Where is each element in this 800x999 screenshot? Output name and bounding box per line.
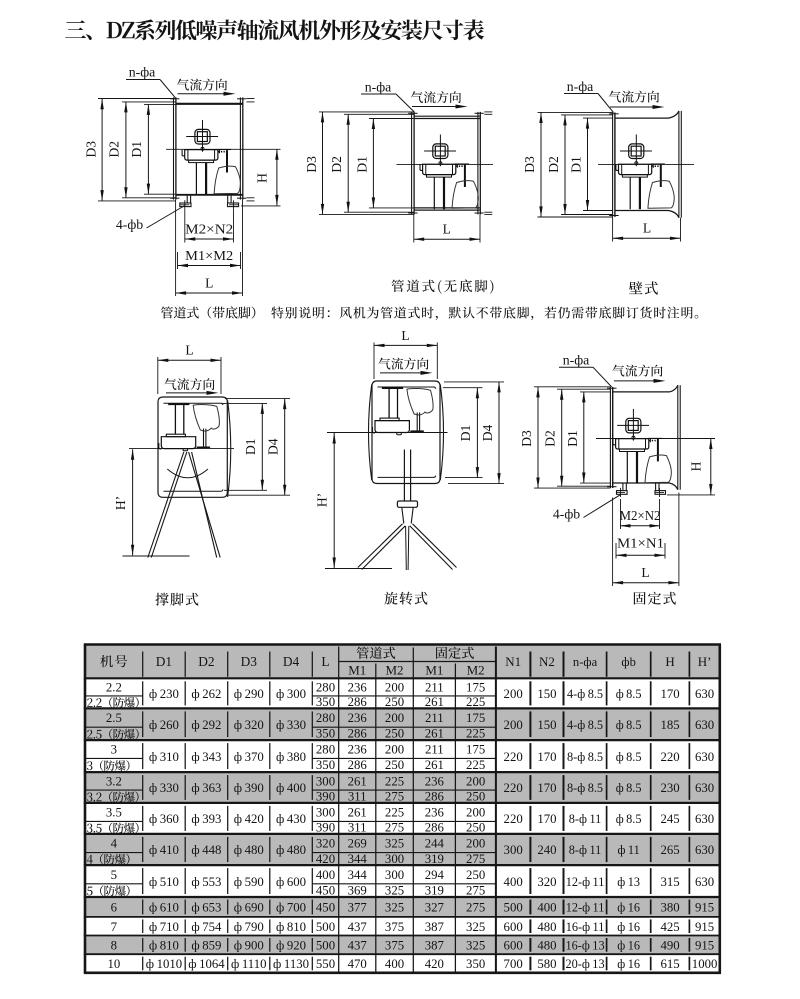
svg-text:400: 400 bbox=[316, 868, 335, 882]
svg-text:L: L bbox=[643, 221, 651, 236]
svg-text:8-ф 8.5: 8-ф 8.5 bbox=[567, 781, 603, 795]
svg-text:311: 311 bbox=[348, 821, 367, 835]
svg-text:ф 343: ф 343 bbox=[191, 750, 221, 764]
svg-text:225: 225 bbox=[385, 805, 404, 819]
svg-text:375: 375 bbox=[385, 920, 404, 934]
svg-text:170: 170 bbox=[537, 781, 556, 795]
svg-text:350: 350 bbox=[316, 695, 335, 709]
svg-text:n-фa: n-фa bbox=[129, 65, 156, 80]
svg-text:280: 280 bbox=[316, 743, 335, 757]
svg-text:ф 430: ф 430 bbox=[276, 812, 306, 826]
svg-text:ф 380: ф 380 bbox=[276, 750, 306, 764]
svg-text:D3: D3 bbox=[241, 654, 258, 669]
svg-text:261: 261 bbox=[425, 727, 444, 741]
svg-text:175: 175 bbox=[466, 711, 485, 725]
svg-text:275: 275 bbox=[385, 789, 404, 803]
svg-text:ф 553: ф 553 bbox=[191, 875, 221, 889]
svg-text:ф 1010: ф 1010 bbox=[146, 957, 182, 971]
svg-text:ф 1110: ф 1110 bbox=[231, 957, 267, 971]
svg-text:244: 244 bbox=[425, 837, 445, 851]
svg-text:ф 790: ф 790 bbox=[234, 920, 264, 934]
svg-text:280: 280 bbox=[316, 711, 335, 725]
svg-text:250: 250 bbox=[466, 821, 485, 835]
svg-text:4: 4 bbox=[111, 837, 118, 851]
svg-text:D2: D2 bbox=[198, 654, 214, 669]
svg-text:300: 300 bbox=[316, 805, 335, 819]
svg-text:H: H bbox=[689, 461, 704, 471]
svg-text:490: 490 bbox=[660, 939, 679, 953]
svg-text:400: 400 bbox=[385, 957, 404, 971]
svg-text:n-фa: n-фa bbox=[365, 80, 392, 95]
svg-text:L: L bbox=[401, 328, 409, 343]
svg-text:ф 390: ф 390 bbox=[234, 781, 264, 795]
svg-text:500: 500 bbox=[504, 901, 523, 915]
svg-text:ф 480: ф 480 bbox=[276, 843, 306, 857]
svg-text:250: 250 bbox=[385, 758, 404, 772]
svg-text:630: 630 bbox=[695, 875, 714, 889]
svg-text:L: L bbox=[185, 343, 193, 358]
svg-text:M2×N2: M2×N2 bbox=[620, 508, 661, 523]
svg-text:ф 590: ф 590 bbox=[234, 875, 264, 889]
svg-text:200: 200 bbox=[504, 718, 523, 732]
svg-text:420: 420 bbox=[316, 852, 335, 866]
svg-text:915: 915 bbox=[695, 901, 714, 915]
svg-text:325: 325 bbox=[466, 939, 485, 953]
svg-text:L: L bbox=[321, 654, 329, 669]
svg-text:700: 700 bbox=[504, 957, 523, 971]
svg-text:220: 220 bbox=[504, 812, 523, 826]
svg-text:H: H bbox=[255, 173, 270, 183]
svg-text:ф 370: ф 370 bbox=[234, 750, 264, 764]
svg-text:319: 319 bbox=[425, 883, 444, 897]
svg-text:D3: D3 bbox=[304, 156, 319, 173]
svg-text:250: 250 bbox=[385, 727, 404, 741]
svg-text:ф 900: ф 900 bbox=[234, 939, 264, 953]
svg-text:ф 262: ф 262 bbox=[191, 687, 221, 701]
svg-text:ф 16: ф 16 bbox=[617, 901, 640, 915]
svg-text:ф 610: ф 610 bbox=[149, 901, 179, 915]
svg-text:630: 630 bbox=[695, 718, 714, 732]
svg-text:M1×M2: M1×M2 bbox=[185, 248, 233, 263]
svg-text:185: 185 bbox=[660, 718, 679, 732]
svg-text:275: 275 bbox=[385, 821, 404, 835]
svg-text:H’: H’ bbox=[113, 496, 128, 510]
svg-text:ф 13: ф 13 bbox=[617, 875, 640, 889]
svg-text:H’: H’ bbox=[698, 654, 712, 669]
svg-text:325: 325 bbox=[385, 901, 404, 915]
svg-text:380: 380 bbox=[660, 901, 679, 915]
svg-text:L: L bbox=[641, 565, 649, 580]
svg-text:225: 225 bbox=[466, 758, 485, 772]
svg-text:200: 200 bbox=[385, 743, 404, 757]
svg-text:230: 230 bbox=[660, 781, 679, 795]
svg-text:ф 710: ф 710 bbox=[149, 920, 179, 934]
svg-text:630: 630 bbox=[695, 781, 714, 795]
svg-text:M1: M1 bbox=[425, 663, 443, 678]
svg-text:L: L bbox=[205, 276, 213, 291]
svg-text:12-ф 11: 12-ф 11 bbox=[566, 875, 605, 889]
svg-text:4-фb: 4-фb bbox=[116, 217, 143, 232]
svg-text:D4: D4 bbox=[480, 425, 495, 442]
svg-text:286: 286 bbox=[348, 758, 368, 772]
svg-text:3: 3 bbox=[111, 743, 117, 757]
svg-text:2.2: 2.2 bbox=[106, 680, 122, 694]
svg-text:4-ф 8.5: 4-ф 8.5 bbox=[567, 718, 603, 732]
svg-text:375: 375 bbox=[385, 939, 404, 953]
svg-text:20-ф 13: 20-ф 13 bbox=[565, 957, 604, 971]
svg-text:450: 450 bbox=[316, 883, 335, 897]
svg-text:220: 220 bbox=[660, 750, 679, 764]
svg-text:275: 275 bbox=[466, 901, 485, 915]
svg-text:ф 292: ф 292 bbox=[191, 718, 221, 732]
svg-text:470: 470 bbox=[348, 957, 367, 971]
svg-text:350: 350 bbox=[316, 727, 335, 741]
svg-text:ф 410: ф 410 bbox=[149, 843, 179, 857]
svg-text:n-фa: n-фa bbox=[563, 353, 590, 368]
svg-text:ф 810: ф 810 bbox=[149, 939, 179, 953]
svg-text:150: 150 bbox=[537, 687, 556, 701]
svg-text:ф 260: ф 260 bbox=[149, 718, 179, 732]
svg-text:ф 330: ф 330 bbox=[276, 718, 306, 732]
svg-text:ф 700: ф 700 bbox=[276, 901, 306, 915]
svg-text:325: 325 bbox=[466, 920, 485, 934]
svg-text:D2: D2 bbox=[546, 156, 561, 173]
svg-text:350: 350 bbox=[466, 957, 485, 971]
svg-text:225: 225 bbox=[385, 774, 404, 788]
svg-text:220: 220 bbox=[504, 781, 523, 795]
svg-text:300: 300 bbox=[385, 852, 404, 866]
svg-text:n-фa: n-фa bbox=[573, 655, 598, 669]
svg-text:480: 480 bbox=[537, 939, 556, 953]
svg-text:319: 319 bbox=[425, 852, 444, 866]
svg-text:ф 859: ф 859 bbox=[191, 939, 221, 953]
svg-text:200: 200 bbox=[466, 837, 485, 851]
svg-text:315: 315 bbox=[660, 875, 679, 889]
svg-text:ф 16: ф 16 bbox=[617, 957, 640, 971]
svg-text:600: 600 bbox=[504, 920, 523, 934]
svg-text:240: 240 bbox=[537, 843, 556, 857]
svg-text:300: 300 bbox=[316, 774, 335, 788]
svg-text:211: 211 bbox=[425, 743, 444, 757]
svg-text:200: 200 bbox=[466, 805, 485, 819]
svg-text:280: 280 bbox=[316, 680, 335, 694]
svg-text:D2: D2 bbox=[543, 430, 558, 447]
svg-text:3.5: 3.5 bbox=[106, 805, 122, 819]
svg-text:390: 390 bbox=[316, 789, 335, 803]
svg-text:D1: D1 bbox=[458, 425, 473, 442]
svg-text:ф 920: ф 920 bbox=[276, 939, 306, 953]
svg-text:D1: D1 bbox=[243, 439, 258, 456]
svg-text:ф 310: ф 310 bbox=[149, 750, 179, 764]
svg-text:M2: M2 bbox=[467, 663, 485, 678]
svg-text:437: 437 bbox=[348, 939, 368, 953]
svg-text:580: 580 bbox=[537, 957, 556, 971]
svg-text:ф 1064: ф 1064 bbox=[188, 957, 225, 971]
svg-text:ф 653: ф 653 bbox=[191, 901, 221, 915]
svg-text:369: 369 bbox=[348, 883, 367, 897]
svg-text:ф 230: ф 230 bbox=[149, 687, 179, 701]
svg-text:H: H bbox=[665, 654, 674, 669]
svg-text:261: 261 bbox=[348, 805, 367, 819]
svg-text:n-фa: n-фa bbox=[567, 79, 594, 94]
svg-text:245: 245 bbox=[660, 812, 679, 826]
svg-text:915: 915 bbox=[695, 920, 714, 934]
svg-text:390: 390 bbox=[316, 821, 335, 835]
svg-text:ф 448: ф 448 bbox=[191, 843, 221, 857]
svg-text:M1: M1 bbox=[348, 663, 366, 678]
svg-text:ф 8.5: ф 8.5 bbox=[616, 812, 642, 826]
svg-text:450: 450 bbox=[316, 901, 335, 915]
svg-text:320: 320 bbox=[316, 837, 335, 851]
svg-text:400: 400 bbox=[504, 875, 523, 889]
svg-text:ф 16: ф 16 bbox=[617, 920, 640, 934]
svg-text:8-ф 8.5: 8-ф 8.5 bbox=[567, 750, 603, 764]
svg-text:8-ф 11: 8-ф 11 bbox=[569, 812, 602, 826]
svg-text:377: 377 bbox=[348, 901, 368, 915]
svg-text:D1: D1 bbox=[565, 430, 580, 447]
svg-text:D3: D3 bbox=[84, 141, 99, 158]
svg-text:L: L bbox=[443, 222, 451, 237]
svg-text:ф 600: ф 600 bbox=[276, 875, 306, 889]
svg-text:170: 170 bbox=[537, 750, 556, 764]
svg-text:D1: D1 bbox=[156, 654, 172, 669]
svg-text:150: 150 bbox=[537, 718, 556, 732]
svg-text:4-ф 8.5: 4-ф 8.5 bbox=[567, 687, 603, 701]
svg-text:200: 200 bbox=[466, 774, 485, 788]
svg-text:6: 6 bbox=[111, 901, 118, 915]
svg-text:437: 437 bbox=[348, 920, 368, 934]
svg-text:8-ф 11: 8-ф 11 bbox=[569, 843, 602, 857]
svg-text:ф 330: ф 330 bbox=[149, 781, 179, 795]
svg-text:M1×N1: M1×N1 bbox=[617, 536, 664, 551]
svg-text:M2×N2: M2×N2 bbox=[185, 221, 233, 236]
svg-text:265: 265 bbox=[660, 843, 679, 857]
svg-text:311: 311 bbox=[348, 789, 367, 803]
svg-text:250: 250 bbox=[385, 695, 404, 709]
svg-text:480: 480 bbox=[537, 920, 556, 934]
svg-text:D4: D4 bbox=[266, 438, 281, 455]
svg-text:N2: N2 bbox=[539, 654, 555, 669]
svg-text:630: 630 bbox=[695, 843, 714, 857]
svg-text:236: 236 bbox=[425, 774, 445, 788]
svg-text:175: 175 bbox=[466, 680, 485, 694]
svg-text:12-ф 11: 12-ф 11 bbox=[566, 901, 605, 915]
svg-text:5: 5 bbox=[111, 868, 117, 882]
svg-text:630: 630 bbox=[695, 750, 714, 764]
svg-text:2.5: 2.5 bbox=[106, 711, 122, 725]
svg-text:294: 294 bbox=[425, 868, 445, 882]
svg-text:ф 300: ф 300 bbox=[276, 687, 306, 701]
svg-text:8: 8 bbox=[111, 939, 117, 953]
svg-text:600: 600 bbox=[504, 939, 523, 953]
svg-text:211: 211 bbox=[425, 711, 444, 725]
svg-text:236: 236 bbox=[348, 711, 368, 725]
svg-text:D3: D3 bbox=[522, 156, 537, 173]
svg-text:ф 1130: ф 1130 bbox=[273, 957, 309, 971]
svg-text:500: 500 bbox=[316, 920, 335, 934]
svg-text:ф 8.5: ф 8.5 bbox=[616, 750, 642, 764]
svg-text:D1: D1 bbox=[129, 141, 144, 158]
svg-text:630: 630 bbox=[695, 812, 714, 826]
svg-text:ф 690: ф 690 bbox=[234, 901, 264, 915]
svg-text:16-ф 11: 16-ф 11 bbox=[566, 920, 605, 934]
svg-text:325: 325 bbox=[385, 883, 404, 897]
svg-text:ф 8.5: ф 8.5 bbox=[616, 718, 642, 732]
svg-text:344: 344 bbox=[348, 852, 368, 866]
svg-text:170: 170 bbox=[660, 687, 679, 701]
svg-text:200: 200 bbox=[385, 711, 404, 725]
svg-text:286: 286 bbox=[348, 695, 368, 709]
svg-text:286: 286 bbox=[425, 789, 445, 803]
svg-text:4-фb: 4-фb bbox=[553, 507, 580, 522]
svg-text:261: 261 bbox=[348, 774, 367, 788]
svg-text:D1: D1 bbox=[569, 156, 584, 173]
svg-text:387: 387 bbox=[425, 920, 445, 934]
svg-text:425: 425 bbox=[660, 920, 679, 934]
svg-text:D3: D3 bbox=[519, 430, 534, 447]
svg-text:175: 175 bbox=[466, 743, 485, 757]
svg-text:ф 810: ф 810 bbox=[276, 920, 306, 934]
svg-text:286: 286 bbox=[348, 727, 368, 741]
svg-text:10: 10 bbox=[107, 957, 120, 971]
svg-text:275: 275 bbox=[466, 883, 485, 897]
svg-text:ф 420: ф 420 bbox=[234, 812, 264, 826]
svg-text:211: 211 bbox=[425, 680, 444, 694]
svg-text:236: 236 bbox=[348, 680, 368, 694]
svg-text:400: 400 bbox=[537, 901, 556, 915]
svg-text:250: 250 bbox=[466, 868, 485, 882]
svg-text:550: 550 bbox=[316, 957, 335, 971]
svg-text:ф 16: ф 16 bbox=[617, 939, 640, 953]
svg-text:H’: H’ bbox=[315, 493, 330, 507]
svg-text:ф 400: ф 400 bbox=[276, 781, 306, 795]
svg-text:325: 325 bbox=[385, 837, 404, 851]
svg-text:225: 225 bbox=[466, 695, 485, 709]
svg-text:200: 200 bbox=[504, 687, 523, 701]
svg-text:236: 236 bbox=[425, 805, 445, 819]
svg-text:ф 8.5: ф 8.5 bbox=[616, 781, 642, 795]
svg-text:630: 630 bbox=[695, 687, 714, 701]
svg-text:350: 350 bbox=[316, 758, 335, 772]
svg-text:ф 320: ф 320 bbox=[234, 718, 264, 732]
svg-text:фb: фb bbox=[621, 655, 635, 669]
svg-text:ф 11: ф 11 bbox=[618, 843, 640, 857]
svg-text:286: 286 bbox=[425, 821, 445, 835]
svg-text:236: 236 bbox=[348, 743, 368, 757]
svg-text:500: 500 bbox=[316, 939, 335, 953]
svg-text:7: 7 bbox=[111, 920, 118, 934]
svg-text:ф 360: ф 360 bbox=[149, 812, 179, 826]
svg-text:915: 915 bbox=[695, 939, 714, 953]
svg-text:ф 8.5: ф 8.5 bbox=[616, 687, 642, 701]
svg-text:387: 387 bbox=[425, 939, 445, 953]
svg-text:ф 510: ф 510 bbox=[149, 875, 179, 889]
svg-text:ф 393: ф 393 bbox=[191, 812, 221, 826]
svg-text:327: 327 bbox=[425, 901, 445, 915]
svg-text:170: 170 bbox=[537, 812, 556, 826]
svg-text:261: 261 bbox=[425, 758, 444, 772]
svg-text:420: 420 bbox=[425, 957, 444, 971]
svg-text:ф 480: ф 480 bbox=[234, 843, 264, 857]
svg-text:275: 275 bbox=[466, 852, 485, 866]
svg-text:ф 290: ф 290 bbox=[234, 687, 264, 701]
svg-text:220: 220 bbox=[504, 750, 523, 764]
svg-text:3.2: 3.2 bbox=[106, 774, 122, 788]
svg-text:225: 225 bbox=[466, 727, 485, 741]
svg-text:250: 250 bbox=[466, 789, 485, 803]
svg-text:M2: M2 bbox=[385, 663, 403, 678]
svg-text:1000: 1000 bbox=[692, 957, 718, 971]
svg-text:16-ф 13: 16-ф 13 bbox=[565, 939, 604, 953]
svg-text:ф 754: ф 754 bbox=[191, 920, 222, 934]
svg-text:615: 615 bbox=[660, 957, 679, 971]
svg-text:N1: N1 bbox=[505, 654, 521, 669]
svg-text:261: 261 bbox=[425, 695, 444, 709]
svg-text:320: 320 bbox=[537, 875, 556, 889]
svg-text:ф 363: ф 363 bbox=[191, 781, 221, 795]
svg-text:200: 200 bbox=[385, 680, 404, 694]
svg-text:300: 300 bbox=[385, 868, 404, 882]
svg-text:D1: D1 bbox=[354, 156, 369, 173]
svg-text:D2: D2 bbox=[107, 141, 122, 158]
svg-text:344: 344 bbox=[348, 868, 368, 882]
svg-text:300: 300 bbox=[504, 843, 523, 857]
svg-text:D2: D2 bbox=[329, 156, 344, 173]
svg-text:D4: D4 bbox=[283, 654, 300, 669]
svg-text:269: 269 bbox=[348, 837, 367, 851]
